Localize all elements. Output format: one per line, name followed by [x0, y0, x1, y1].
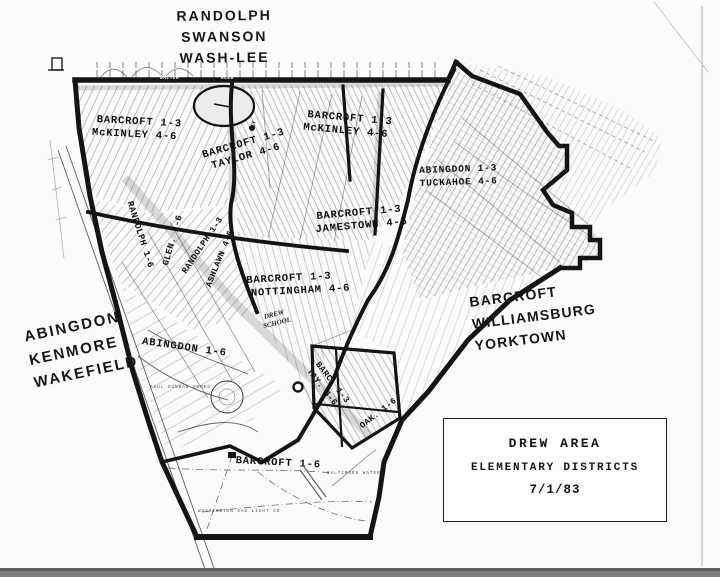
legend-box: DREW AREA ELEMENTARY DISTRICTS 7/1/83 — [443, 418, 667, 522]
district-label-mckinley-west: BARCROFT 1-3 McKINLEY 4-6 — [96, 114, 182, 143]
street-label-reed: REED — [221, 76, 234, 81]
legend-subtitle: ELEMENTARY DISTRICTS — [444, 462, 666, 474]
region-label-line: RANDOLPH — [166, 5, 282, 27]
water-label: BALTIMORE WATER — [327, 471, 381, 476]
scan-edge-strip-dark — [0, 568, 720, 571]
region-label-line: WASH-LEE — [166, 47, 282, 69]
scanned-map-page: RANDOLPH SWANSON WASH-LEE ABINGDON KENMO… — [0, 0, 720, 577]
region-label-north: RANDOLPH SWANSON WASH-LEE — [166, 5, 283, 69]
corner-structure — [48, 58, 64, 70]
street-label-walter: WALTER — [160, 76, 179, 81]
boundary-junction-circle — [294, 383, 303, 392]
map-blob — [228, 452, 236, 458]
district-label-tuckahoe: ABINGDON 1-3 TUCKAHOE 4-6 — [419, 162, 498, 190]
region-label-line: SWANSON — [166, 26, 282, 48]
legend-title: DREW AREA — [444, 436, 666, 451]
legend-date: 7/1/83 — [444, 483, 666, 497]
dunbar-homes-label: PAUL DUNBAR HOMES — [150, 385, 211, 390]
gas-company-label: WASHINGTON GAS LIGHT CO — [198, 509, 280, 514]
